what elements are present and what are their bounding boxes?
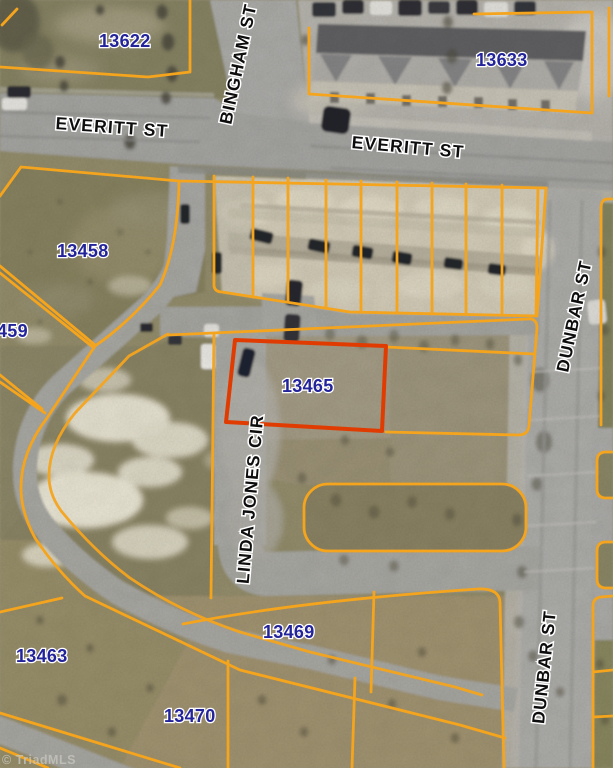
svg-text:13463: 13463 xyxy=(16,646,68,666)
svg-text:13633: 13633 xyxy=(476,50,528,70)
svg-text:13470: 13470 xyxy=(164,706,216,726)
svg-text:© TriadMLS: © TriadMLS xyxy=(2,753,76,767)
svg-text:13622: 13622 xyxy=(99,31,151,51)
svg-text:13465: 13465 xyxy=(282,376,334,396)
svg-text:13458: 13458 xyxy=(57,241,109,261)
svg-text:13469: 13469 xyxy=(263,622,315,642)
svg-text:459: 459 xyxy=(0,321,28,341)
